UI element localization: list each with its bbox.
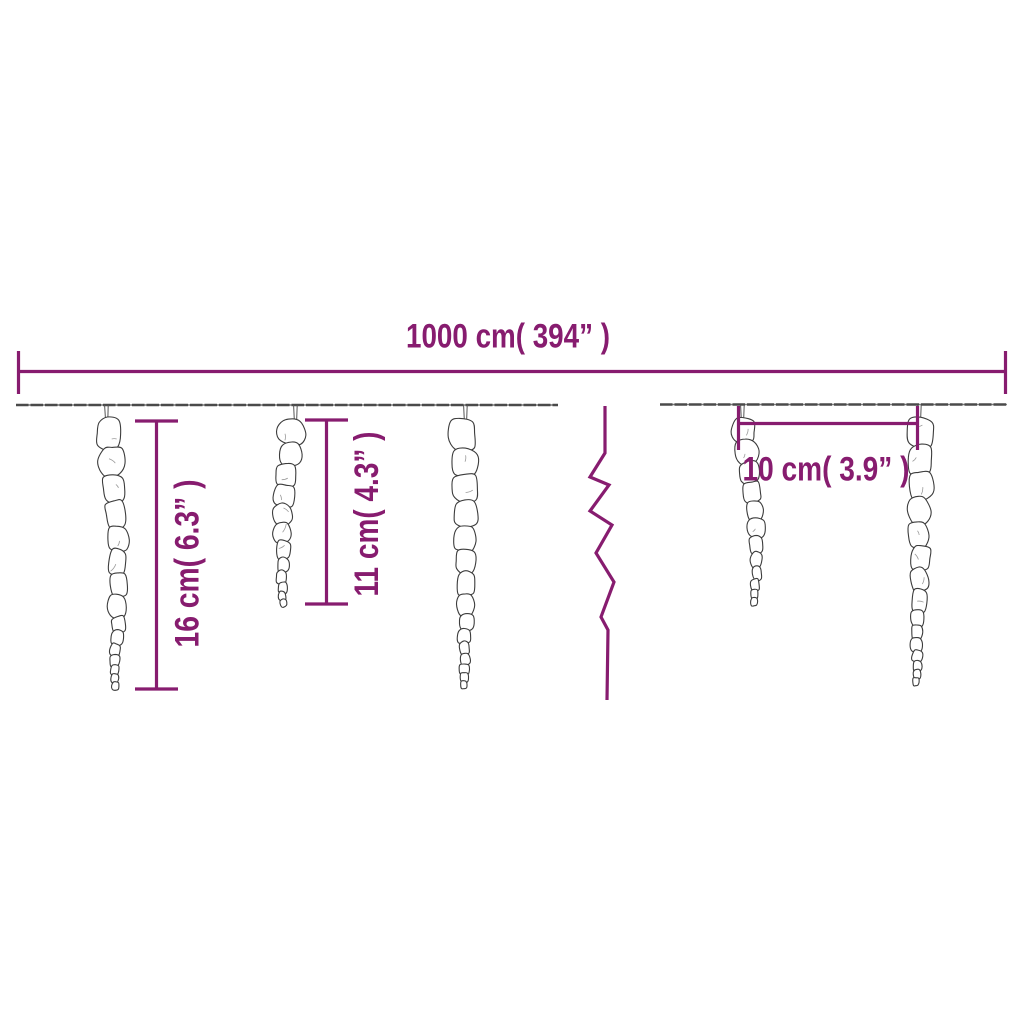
svg-text:11 cm( 4.3” ): 11 cm( 4.3” ) <box>348 432 386 597</box>
svg-text:10 cm( 3.9” ): 10 cm( 3.9” ) <box>743 451 910 489</box>
svg-text:1000 cm( 394” ): 1000 cm( 394” ) <box>406 318 610 356</box>
svg-text:16 cm( 6.3” ): 16 cm( 6.3” ) <box>169 480 207 648</box>
